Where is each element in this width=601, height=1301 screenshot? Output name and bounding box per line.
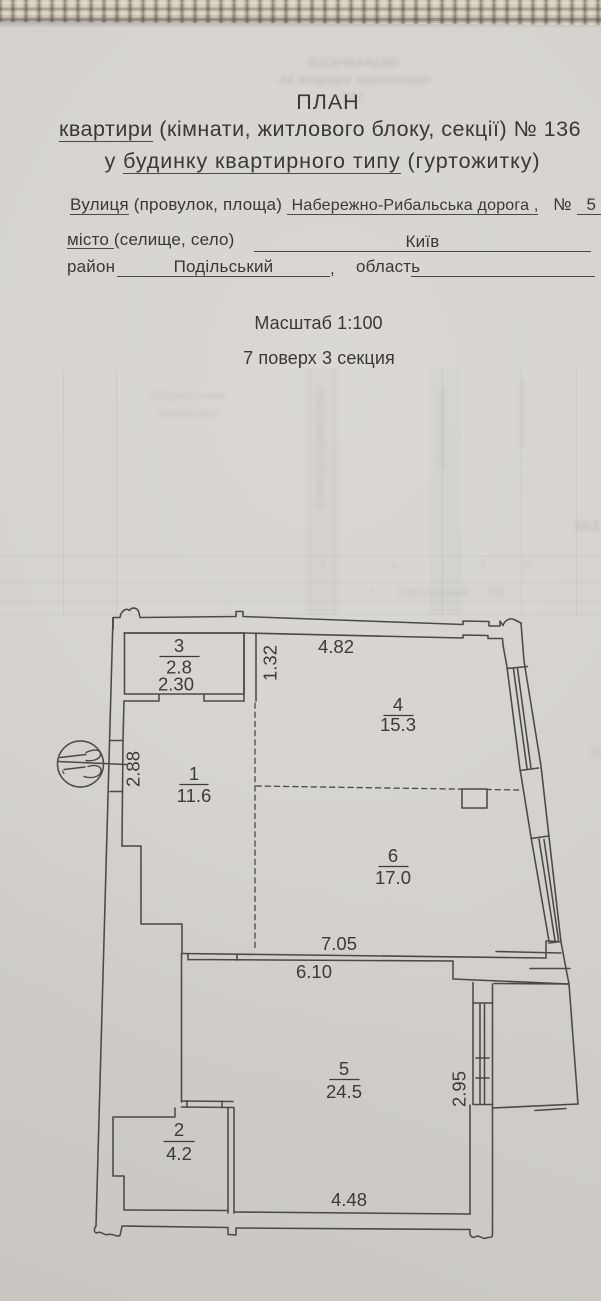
svg-text:3: 3 bbox=[174, 635, 184, 656]
svg-text:1.32: 1.32 bbox=[260, 645, 281, 681]
svg-text:5: 5 bbox=[339, 1058, 349, 1079]
svg-text:4: 4 bbox=[393, 694, 403, 715]
svg-text:6: 6 bbox=[388, 845, 398, 866]
svg-text:2.30: 2.30 bbox=[158, 674, 194, 695]
svg-text:4.48: 4.48 bbox=[331, 1189, 367, 1210]
svg-text:6.10: 6.10 bbox=[296, 961, 332, 982]
svg-text:4.2: 4.2 bbox=[166, 1143, 192, 1164]
svg-text:1: 1 bbox=[189, 763, 199, 784]
svg-text:2.88: 2.88 bbox=[123, 751, 144, 787]
svg-text:17.0: 17.0 bbox=[375, 867, 411, 888]
svg-text:11.6: 11.6 bbox=[177, 785, 212, 806]
svg-text:2: 2 bbox=[174, 1119, 184, 1140]
svg-text:2.95: 2.95 bbox=[449, 1071, 470, 1107]
svg-text:4.82: 4.82 bbox=[318, 636, 354, 657]
svg-text:24.5: 24.5 bbox=[326, 1081, 362, 1102]
svg-text:15.3: 15.3 bbox=[380, 714, 416, 735]
svg-text:7.05: 7.05 bbox=[321, 933, 357, 954]
